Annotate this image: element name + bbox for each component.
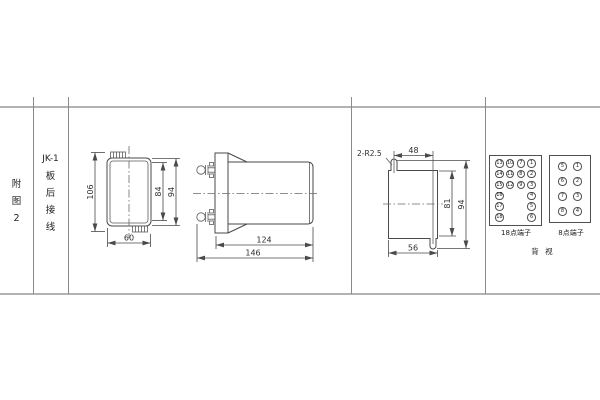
- terminal-circle: 5: [558, 162, 567, 171]
- cutout-view: 2-R2.5 48 81 94: [357, 146, 470, 257]
- terminal-slot-empty: [517, 202, 526, 211]
- terminal-circle: 12: [506, 181, 515, 190]
- terminal-slot-empty: [506, 192, 515, 201]
- terminal-circle: 11: [506, 170, 515, 179]
- terminal-circle: 10: [506, 159, 515, 168]
- terminal-circle: 6: [527, 213, 536, 222]
- front-view: 106 84 94 60: [86, 146, 180, 247]
- svg-text:2-R2.5: 2-R2.5: [357, 149, 382, 158]
- side-body: [228, 162, 313, 224]
- front-top-terminal: [111, 152, 126, 158]
- side-view: 124 146: [193, 153, 318, 262]
- terminal-circle: 6: [558, 177, 567, 186]
- svg-text:146: 146: [245, 249, 260, 258]
- cutout-dim-94: 94: [397, 161, 470, 249]
- terminal-circle: 4: [573, 207, 582, 216]
- terminal-circle: 3: [573, 192, 582, 201]
- cutout-dim-48: 48: [394, 146, 433, 156]
- terminal-block-8: 51627384: [549, 155, 591, 223]
- terminal-circle: 2: [527, 170, 536, 179]
- terminal-circle: 3: [527, 181, 536, 190]
- terminal-slot-empty: [517, 213, 526, 222]
- terminal-circle: 15: [495, 181, 504, 190]
- svg-text:94: 94: [167, 187, 176, 197]
- terminal-circle: 2: [573, 177, 582, 186]
- cutout-slot-note: 2-R2.5: [357, 149, 392, 165]
- side-dim-146: 146: [197, 224, 313, 262]
- terminal-circle: 4: [527, 192, 536, 201]
- svg-text:60: 60: [124, 234, 134, 243]
- terminal-18-label: 18点端子: [481, 228, 551, 238]
- front-bottom-terminal: [133, 226, 148, 232]
- svg-text:94: 94: [457, 199, 466, 209]
- drawing-sheet: 附 图 2 JK-1 板 后 接 线: [0, 0, 600, 400]
- terminal-slot-empty: [506, 202, 515, 211]
- terminal-circle: 16: [495, 192, 504, 201]
- terminal-circle: 8: [517, 170, 526, 179]
- svg-text:48: 48: [408, 146, 418, 155]
- side-flange: [215, 153, 228, 233]
- svg-text:56: 56: [408, 244, 418, 253]
- terminal-circle: 1: [573, 162, 582, 171]
- terminal-circle: 7: [517, 159, 526, 168]
- front-dim-60: 60: [108, 228, 151, 247]
- terminal-circle: 14: [495, 170, 504, 179]
- terminal-circle: 18: [495, 213, 504, 222]
- terminal-circle: 5: [527, 202, 536, 211]
- side-top-stud: [197, 163, 215, 178]
- terminal-slot-empty: [506, 213, 515, 222]
- terminal-circle: 7: [558, 192, 567, 201]
- terminal-circle: 9: [517, 181, 526, 190]
- terminal-circle: 17: [495, 202, 504, 211]
- svg-text:81: 81: [443, 198, 452, 208]
- svg-text:106: 106: [86, 184, 95, 199]
- rear-view-label: 背 视: [505, 246, 581, 257]
- terminal-slot-empty: [517, 192, 526, 201]
- front-dim-106: 106: [86, 153, 105, 232]
- front-dim-84: 84: [152, 163, 167, 221]
- terminal-circle: 13: [495, 159, 504, 168]
- terminal-8-label: 8点端子: [543, 228, 599, 238]
- svg-text:84: 84: [154, 186, 163, 196]
- svg-text:124: 124: [256, 236, 271, 245]
- terminal-circle: 1: [527, 159, 536, 168]
- cutout-dim-81: 81: [439, 171, 456, 236]
- terminal-block-18: 131071141182151293164175186: [489, 155, 542, 226]
- terminal-circle: 8: [558, 207, 567, 216]
- side-bottom-stud: [197, 210, 215, 225]
